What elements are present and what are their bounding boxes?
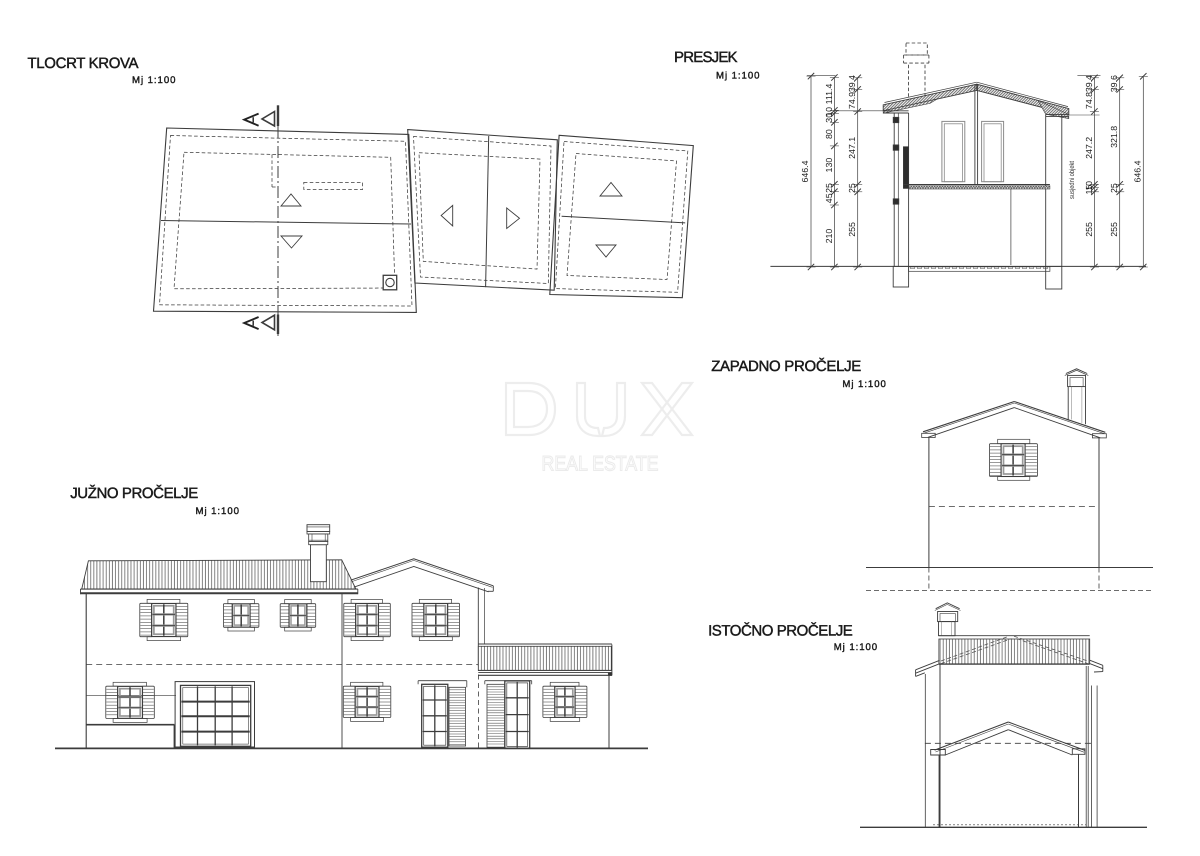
svg-text:Mj 1:100: Mj 1:100: [716, 71, 760, 82]
svg-text:25: 25: [1109, 183, 1119, 193]
svg-text:Mj 1:100: Mj 1:100: [834, 642, 878, 653]
svg-text:39.4: 39.4: [847, 75, 857, 92]
svg-text:646.4: 646.4: [1132, 160, 1142, 182]
svg-text:TLOCRT KROVA: TLOCRT KROVA: [28, 55, 139, 72]
svg-text:PRESJEK: PRESJEK: [674, 49, 738, 66]
svg-text:247.1: 247.1: [847, 137, 857, 159]
svg-text:255: 255: [847, 222, 857, 237]
svg-text:25: 25: [847, 183, 857, 193]
svg-text:REAL ESTATE: REAL ESTATE: [542, 453, 659, 476]
svg-text:210: 210: [824, 229, 834, 244]
svg-text:39.6: 39.6: [1109, 75, 1119, 92]
svg-text:255: 255: [1084, 222, 1094, 237]
svg-text:JUŽNO PROČELJE: JUŽNO PROČELJE: [70, 484, 198, 502]
svg-text:74.9: 74.9: [847, 92, 857, 109]
svg-text:ZAPADNO PROČELJE: ZAPADNO PROČELJE: [711, 357, 861, 375]
svg-text:Mj 1:100: Mj 1:100: [132, 75, 176, 86]
svg-text:74.8: 74.8: [1084, 92, 1094, 109]
svg-text:111.4: 111.4: [824, 84, 834, 105]
svg-text:130: 130: [824, 158, 834, 173]
svg-text:Mj 1:100: Mj 1:100: [842, 379, 886, 390]
svg-text:ISTOČNO PROČELJE: ISTOČNO PROČELJE: [708, 621, 853, 639]
svg-text:10: 10: [824, 107, 834, 117]
svg-text:25: 25: [824, 183, 834, 193]
svg-text:255: 255: [1109, 222, 1119, 237]
svg-text:39.4: 39.4: [1084, 75, 1094, 92]
svg-text:646.4: 646.4: [800, 160, 810, 182]
svg-text:45: 45: [824, 193, 834, 203]
svg-text:Mj 1:100: Mj 1:100: [196, 506, 240, 517]
svg-text:247.2: 247.2: [1084, 137, 1094, 159]
svg-text:10: 10: [1084, 181, 1094, 191]
svg-text:321.8: 321.8: [1109, 126, 1119, 148]
svg-text:susjedni objekt: susjedni objekt: [1068, 161, 1076, 199]
svg-text:80: 80: [824, 129, 834, 139]
